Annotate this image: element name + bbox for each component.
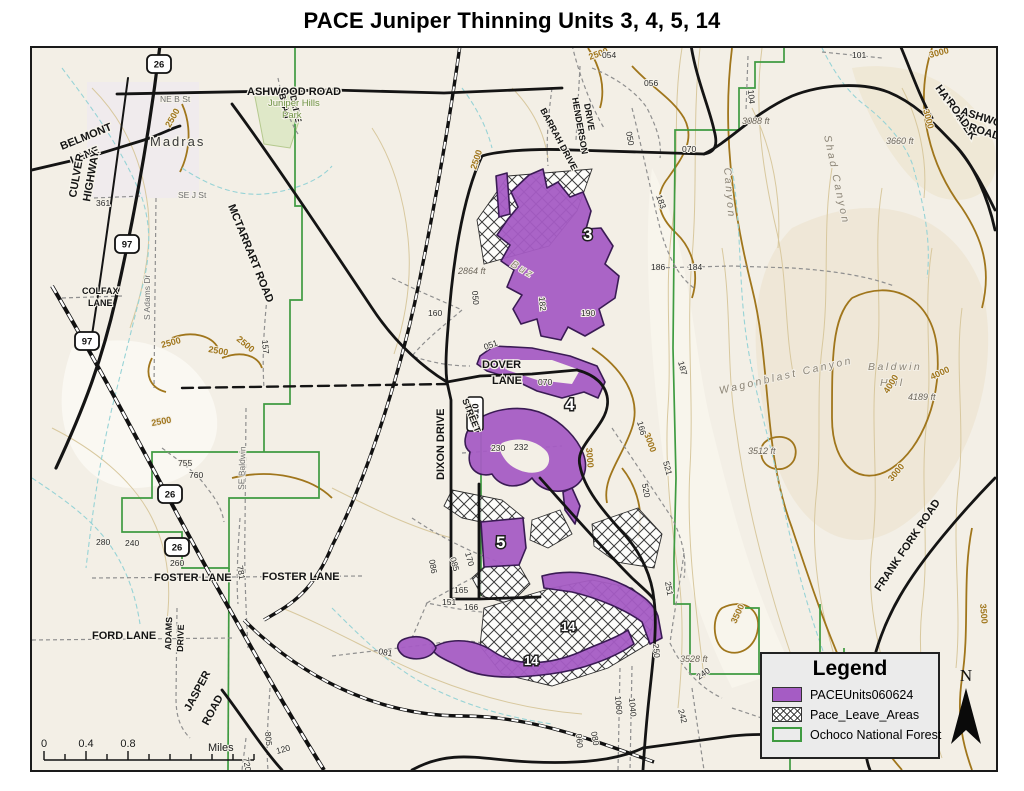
map-label-lane: LANE <box>492 375 522 387</box>
map-label-adams: ADAMS <box>163 617 174 650</box>
svg-text:26: 26 <box>165 490 176 501</box>
map-label-101: 101 <box>852 50 866 60</box>
route-shield-97: 97 <box>75 332 99 350</box>
legend-item-label: Ochoco National Forest <box>810 728 941 742</box>
map-label-se-j-st: SE J St <box>178 190 207 200</box>
map-label-070: 070 <box>682 144 696 154</box>
map-label-juniper-hills: Juniper Hills <box>268 98 320 109</box>
map-label-186: 186 <box>651 262 665 272</box>
legend-item-forest: Ochoco National Forest <box>772 727 928 742</box>
map-label-3000: 3000 <box>584 447 596 468</box>
legend-item-label: PACEUnits060624 <box>810 688 913 702</box>
page: PACE Juniper Thinning Units 3, 4, 5, 14 <box>0 0 1024 791</box>
svg-text:97: 97 <box>82 337 93 348</box>
map-label-baldwin: Baldwin <box>868 361 922 373</box>
map-label-054: 054 <box>602 50 616 60</box>
map-label-1040: 1040 <box>627 697 639 717</box>
map-label-dover: DOVER <box>482 359 521 371</box>
legend-item-leave-areas: Pace_Leave_Areas <box>772 707 928 722</box>
map-label-3088-ft: 3088 ft <box>742 116 770 126</box>
forest-swatch <box>772 727 802 742</box>
map-label-3: 3 <box>583 225 592 244</box>
route-shield-97: 97 <box>115 235 139 253</box>
svg-text:26: 26 <box>154 60 165 71</box>
map-label-230: 230 <box>491 443 505 453</box>
map-label-ne-b-st: NE B St <box>160 94 191 104</box>
map-label-3500: 3500 <box>978 603 990 624</box>
legend-item-label: Pace_Leave_Areas <box>810 708 919 722</box>
map-label-720: 720 <box>241 757 253 770</box>
map-label-260: 260 <box>170 558 184 568</box>
map-label-056: 056 <box>644 78 658 88</box>
map-label-160: 160 <box>428 308 442 318</box>
map-label-232: 232 <box>514 442 528 452</box>
unit-3-sliver <box>496 173 510 217</box>
map-label-4189-ft: 4189 ft <box>908 392 936 402</box>
legend: Legend PACEUnits060624 Pace_Leave_Areas … <box>760 652 940 759</box>
legend-item-pace-units: PACEUnits060624 <box>772 687 928 702</box>
map-label-760: 760 <box>189 470 203 480</box>
map-label-805: 805 <box>263 731 274 746</box>
map-label-1060: 1060 <box>613 695 625 715</box>
map-label-14: 14 <box>561 619 576 634</box>
map-label-lane: LANE <box>88 298 113 308</box>
map-label-361: 361 <box>96 198 110 208</box>
scale-tick-label: 0 <box>41 738 47 750</box>
north-arrow-icon <box>949 686 983 746</box>
map-label-755: 755 <box>178 458 192 468</box>
map-label-3512-ft: 3512 ft <box>748 446 776 456</box>
map-label-190: 190 <box>581 308 595 318</box>
map-label-5: 5 <box>496 533 505 552</box>
map-label-ford-lane: FORD LANE <box>92 630 156 642</box>
map-label-240: 240 <box>125 538 139 548</box>
svg-text:97: 97 <box>122 240 133 251</box>
map-label-060: 060 <box>574 733 585 748</box>
map-label-250: 250 <box>651 643 662 658</box>
map-label-se-baldwin: SE Baldwin <box>236 446 248 490</box>
route-shield-26: 26 <box>165 538 189 556</box>
scale-unit-label: Miles <box>208 742 234 754</box>
map-label-colfax: COLFAX <box>82 286 119 296</box>
map-label-3528-ft: 3528 ft <box>680 654 708 664</box>
map-label-070: 070 <box>538 377 552 387</box>
legend-title: Legend <box>762 657 938 681</box>
map-label-050: 050 <box>470 290 481 305</box>
leave-areas-swatch <box>772 707 802 722</box>
map-label-3660-ft: 3660 ft <box>886 136 914 146</box>
map-label-166: 166 <box>464 602 478 612</box>
map-label-foster-lane: FOSTER LANE <box>262 571 340 583</box>
map-label-182: 182 <box>537 296 548 311</box>
map-label-184: 184 <box>688 262 702 272</box>
route-shield-26: 26 <box>158 485 182 503</box>
map-label-280: 280 <box>96 537 110 547</box>
map-label-foster-lane: FOSTER LANE <box>154 572 232 584</box>
north-label: N <box>948 666 984 686</box>
pace-units-swatch <box>772 687 802 702</box>
map-label-157: 157 <box>260 339 271 354</box>
unit-14-west-blob <box>398 637 436 659</box>
map-label-2864-ft: 2864 ft <box>457 266 486 276</box>
map-label-dixon-drive: DIXON DRIVE <box>435 408 447 480</box>
map-label-104: 104 <box>746 89 757 104</box>
map-label-s-adams-dr: S Adams Dr <box>142 274 152 320</box>
svg-text:26: 26 <box>172 543 183 554</box>
map-label-madras: Madras <box>150 134 205 149</box>
map-label-park: Park <box>282 110 302 121</box>
map-label-165: 165 <box>454 585 468 595</box>
map-title: PACE Juniper Thinning Units 3, 4, 5, 14 <box>30 8 994 34</box>
map-label-drive: DRIVE <box>175 624 186 652</box>
map-label-151: 151 <box>442 597 456 607</box>
scale-tick-label: 0.8 <box>120 738 135 750</box>
map-label-14: 14 <box>524 653 539 668</box>
map-frame: 26262697975310 00.40.8Miles ASHWOOD ROAD… <box>30 46 998 772</box>
scale-tick-label: 0.4 <box>78 738 93 750</box>
map-label-4: 4 <box>565 395 575 414</box>
route-shield-26: 26 <box>147 55 171 73</box>
north-arrow: N <box>948 666 984 751</box>
